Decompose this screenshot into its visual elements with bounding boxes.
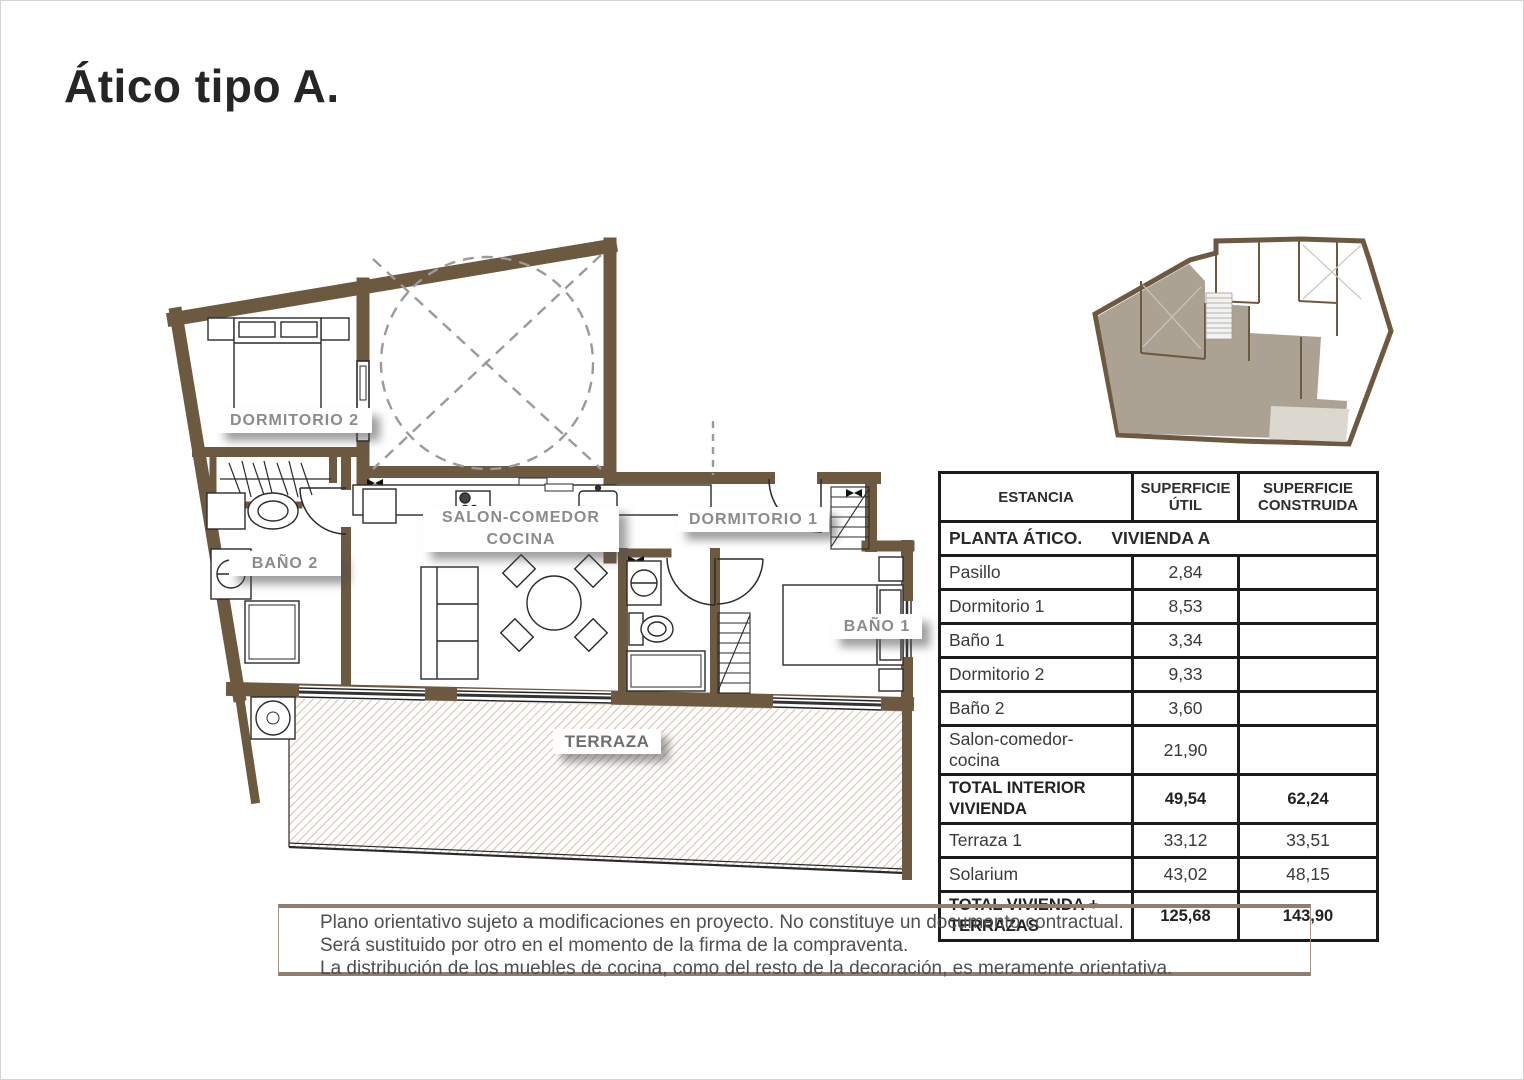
table-row: Dormitorio 1 8,53	[940, 590, 1378, 624]
site-terrace-strip	[1269, 406, 1349, 442]
label-dormitorio-2: DORMITORIO 2	[217, 408, 372, 433]
table-row: Baño 1 3,34	[940, 624, 1378, 658]
label-salon-line2: COCINA	[427, 529, 615, 551]
cell-superficie-util: 3,60	[1133, 692, 1239, 726]
cell-superficie-construida	[1239, 624, 1378, 658]
cell-superficie-construida	[1239, 726, 1378, 775]
disclaimer-line-2: Será sustituido por otro en el momento d…	[320, 934, 1300, 957]
site-stairs	[1206, 293, 1232, 339]
label-bano-1: BAÑO 1	[832, 614, 922, 639]
cell-estancia: Baño 1	[940, 624, 1133, 658]
site-key-plan	[1079, 227, 1413, 471]
floor-plan: DORMITORIO 2 BAÑO 2 SALON-COMEDOR COCINA…	[151, 226, 941, 906]
section-title: PLANTA ÁTICO. VIVIENDA A	[940, 522, 1378, 556]
table-row: Dormitorio 2 9,33	[940, 658, 1378, 692]
cell-superficie-construida	[1239, 658, 1378, 692]
cell-superficie-construida: 62,24	[1239, 775, 1378, 824]
cell-estancia: Terraza 1	[940, 824, 1133, 858]
label-salon-comedor-cocina: SALON-COMEDOR COCINA	[423, 506, 619, 552]
table-row: Terraza 1 33,12 33,51	[940, 824, 1378, 858]
label-bano-2: BAÑO 2	[229, 551, 341, 576]
brochure-page: Ático tipo A.	[0, 0, 1524, 1080]
cell-superficie-util: 43,02	[1133, 858, 1239, 892]
cell-superficie-construida	[1239, 692, 1378, 726]
table-row: TOTAL INTERIOR VIVIENDA 49,54 62,24	[940, 775, 1378, 824]
table-row: Solarium 43,02 48,15	[940, 858, 1378, 892]
header-superficie-util: SUPERFICIE ÚTIL	[1133, 473, 1239, 522]
header-superficie-construida: SUPERFICIE CONSTRUIDA	[1239, 473, 1378, 522]
disclaimer-line-3: La distribución de los muebles de cocina…	[320, 957, 1300, 980]
areas-table: ESTANCIA SUPERFICIE ÚTIL SUPERFICIE CONS…	[938, 471, 1379, 942]
terrace-area	[289, 697, 904, 873]
table-body: PLANTA ÁTICO. VIVIENDA A Pasillo 2,84 Do…	[940, 522, 1378, 941]
cell-superficie-util: 33,12	[1133, 824, 1239, 858]
cell-superficie-util: 8,53	[1133, 590, 1239, 624]
label-salon-line1: SALON-COMEDOR	[427, 507, 615, 529]
table-row: Baño 2 3,60	[940, 692, 1378, 726]
cell-estancia: Pasillo	[940, 556, 1133, 590]
header-estancia: ESTANCIA	[940, 473, 1133, 522]
table-header-row: ESTANCIA SUPERFICIE ÚTIL SUPERFICIE CONS…	[940, 473, 1378, 522]
table-section-row: PLANTA ÁTICO. VIVIENDA A	[940, 522, 1378, 556]
label-dormitorio-1: DORMITORIO 1	[678, 507, 829, 532]
solarium-void-markings	[373, 255, 713, 475]
cell-estancia: Salon-comedor-cocina	[940, 726, 1133, 775]
cell-superficie-construida: 48,15	[1239, 858, 1378, 892]
disclaimer-line-1: Plano orientativo sujeto a modificacione…	[320, 911, 1300, 934]
cell-superficie-construida: 33,51	[1239, 824, 1378, 858]
cell-estancia: Solarium	[940, 858, 1133, 892]
cell-estancia: TOTAL INTERIOR VIVIENDA	[940, 775, 1133, 824]
cell-superficie-util: 49,54	[1133, 775, 1239, 824]
cell-superficie-util: 21,90	[1133, 726, 1239, 775]
cell-superficie-util: 2,84	[1133, 556, 1239, 590]
label-terraza: TERRAZA	[553, 729, 661, 754]
cell-superficie-construida	[1239, 556, 1378, 590]
cell-superficie-construida	[1239, 590, 1378, 624]
cell-superficie-util: 9,33	[1133, 658, 1239, 692]
table-row: Salon-comedor-cocina 21,90	[940, 726, 1378, 775]
cell-superficie-util: 3,34	[1133, 624, 1239, 658]
page-title: Ático tipo A.	[64, 59, 340, 113]
cell-estancia: Dormitorio 2	[940, 658, 1133, 692]
cell-estancia: Baño 2	[940, 692, 1133, 726]
cell-estancia: Dormitorio 1	[940, 590, 1133, 624]
disclaimer-box: Plano orientativo sujeto a modificacione…	[278, 904, 1311, 976]
table-row: Pasillo 2,84	[940, 556, 1378, 590]
